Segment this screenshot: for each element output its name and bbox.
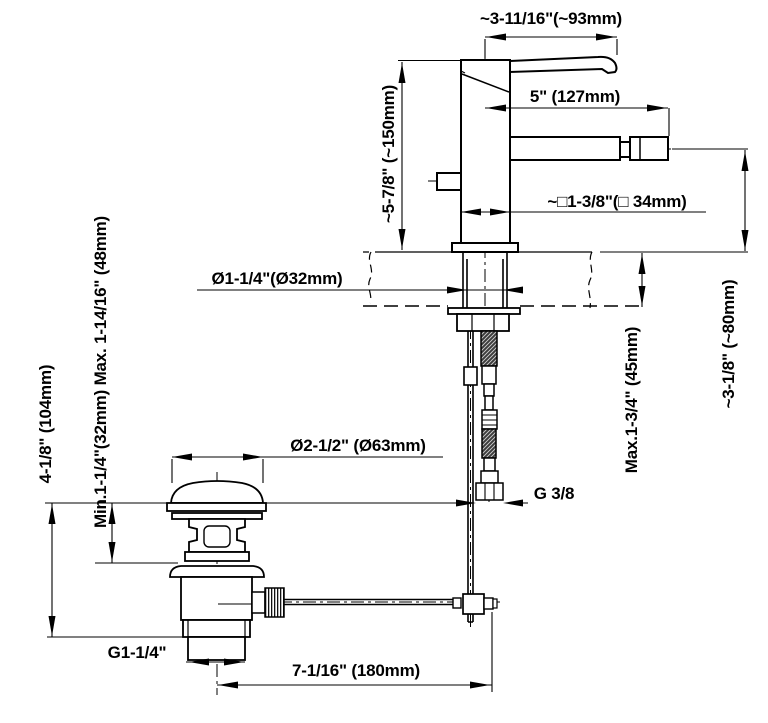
technical-drawing: ~3-11/16"(~93mm) 5" (127mm) ~□1-3/8"(□ 3… (0, 0, 768, 723)
outlet-connector (252, 592, 265, 613)
dim-label-supply-thread: G 3/8 (534, 484, 575, 504)
mounting-shank (448, 252, 520, 331)
dim-label-drain-height: 4-1/8" (104mm) (36, 365, 56, 484)
rod-clamp (464, 367, 477, 385)
rod-junction (463, 594, 484, 614)
shank-nut (457, 314, 509, 331)
hose-braid-upper (481, 331, 497, 366)
aerator (630, 137, 668, 160)
dim-label-spout-reach: 5" (127mm) (530, 87, 620, 107)
dim-label-handle-reach: ~3-11/16"(~93mm) (480, 9, 622, 29)
hose-end-nut (476, 483, 503, 500)
drain-assembly (167, 481, 284, 660)
popup-cap (171, 481, 263, 503)
drain-trumpet (170, 566, 264, 577)
dim-label-hole-diameter: Ø1-1/4"(Ø32mm) (212, 269, 343, 289)
counter-deck (363, 252, 748, 308)
side-knob (437, 173, 461, 190)
supply-hose (476, 331, 503, 500)
faucet-body (461, 60, 510, 243)
dim-label-drain-flange-diameter: Ø2-1/2" (Ø63mm) (290, 436, 425, 456)
base-flange (452, 243, 518, 252)
tailpiece-upper (183, 620, 250, 637)
spout-tube (510, 137, 620, 160)
dim-label-body-height: ~5-7/8" (~150mm) (379, 85, 399, 223)
spout-connector (620, 142, 630, 157)
dim-label-deck-max-thickness: Max.1-3/4" (45mm) (622, 327, 642, 473)
knurled-nut (265, 588, 284, 617)
dim-label-spout-height: ~3-1/8" (~80mm) (719, 280, 739, 409)
handle-lever (510, 57, 617, 73)
hose-braid-lower (482, 429, 496, 458)
tailpiece-thread (188, 637, 245, 660)
drain-body (181, 577, 252, 620)
dim-label-body-width: ~□1-3/8"(□ 34mm) (547, 192, 686, 212)
dim-label-deck-thickness-range: Min.1-1/4"(32mm) Max. 1-14/16" (48mm) (91, 216, 111, 528)
dim-label-drain-thread: G1-1/4" (108, 643, 167, 663)
dim-label-rod-offset: 7-1/16" (180mm) (292, 661, 420, 681)
popup-rod (284, 331, 497, 622)
